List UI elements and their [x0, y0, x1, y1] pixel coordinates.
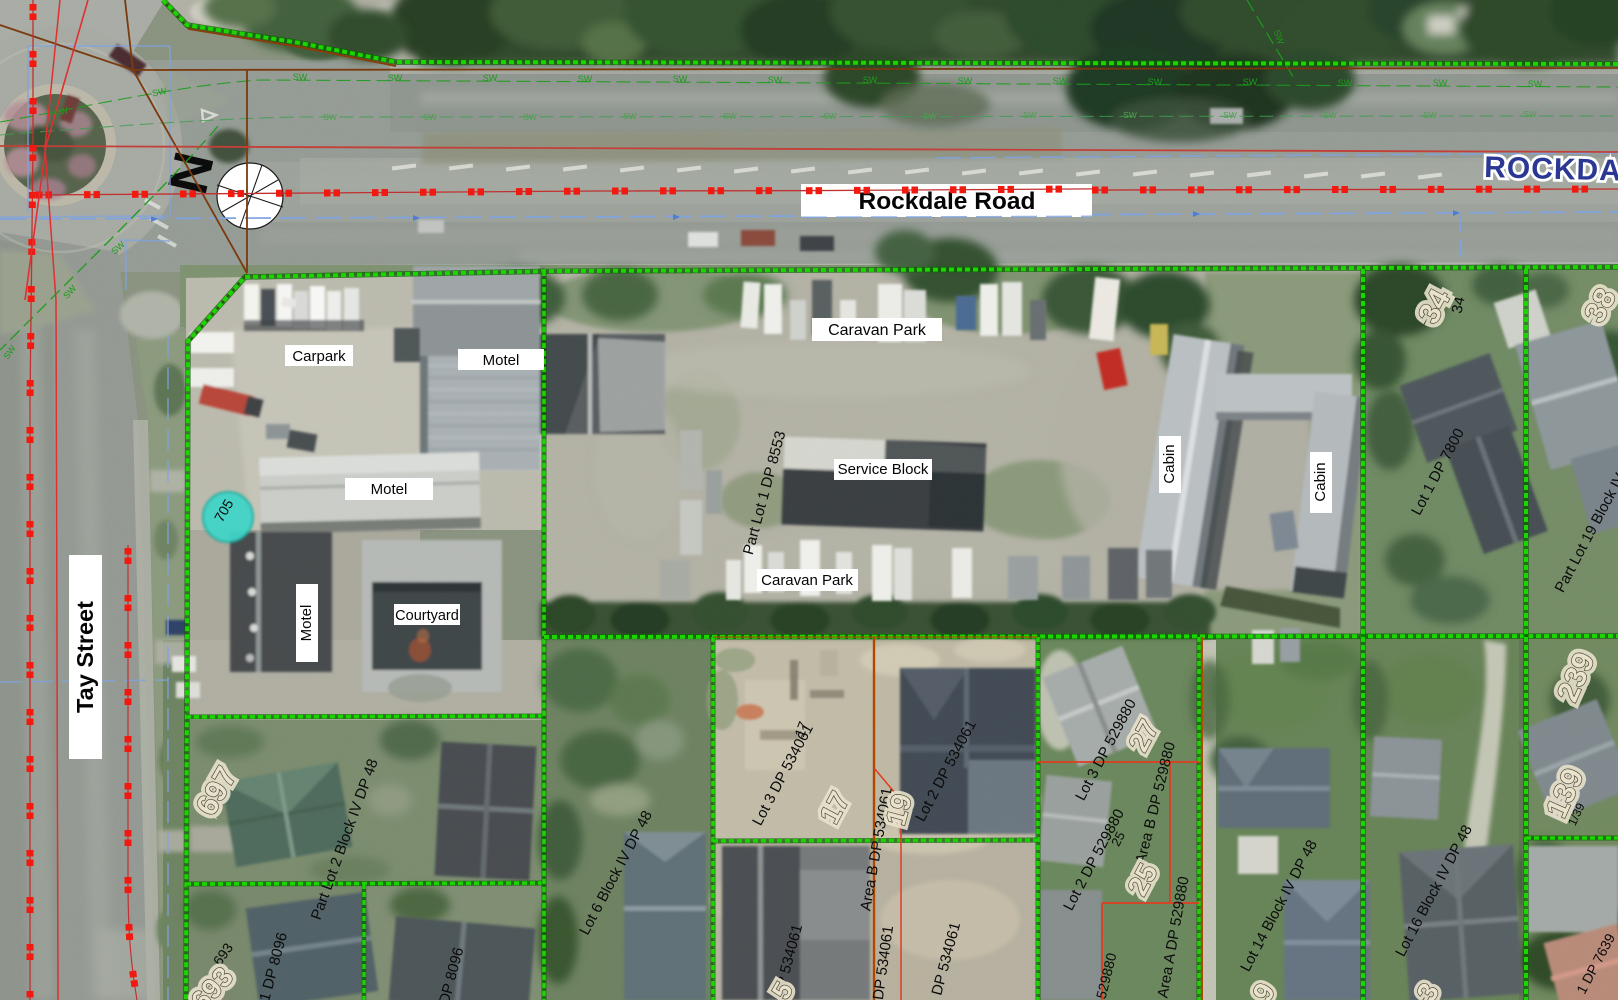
svg-text:Courtyard: Courtyard	[395, 608, 459, 624]
svg-text:SW: SW	[768, 75, 783, 85]
svg-text:SW: SW	[523, 112, 537, 122]
svg-text:SW: SW	[423, 112, 437, 122]
svg-text:SW: SW	[958, 76, 973, 86]
svg-text:Caravan Park: Caravan Park	[761, 572, 853, 589]
svg-text:SW: SW	[723, 111, 737, 121]
svg-text:SW: SW	[1053, 76, 1068, 86]
svg-text:SW: SW	[1243, 77, 1258, 87]
svg-text:SW: SW	[1148, 77, 1163, 87]
svg-text:Tay Street: Tay Street	[72, 601, 98, 713]
svg-text:Cabin: Cabin	[1312, 462, 1329, 501]
svg-text:SW: SW	[388, 73, 403, 83]
svg-text:SW: SW	[1433, 78, 1448, 88]
svg-text:SW: SW	[578, 74, 593, 84]
svg-text:SW: SW	[1323, 110, 1337, 120]
svg-text:SW: SW	[483, 73, 498, 83]
svg-text:SW: SW	[1023, 110, 1037, 120]
svg-text:Cabin: Cabin	[1161, 444, 1178, 483]
svg-text:SW: SW	[923, 111, 937, 121]
svg-text:SW: SW	[323, 112, 337, 122]
svg-text:SW: SW	[1223, 110, 1237, 120]
svg-text:Motel: Motel	[483, 352, 520, 369]
svg-text:Motel: Motel	[298, 605, 315, 642]
svg-text:SW: SW	[673, 74, 688, 84]
svg-text:Carpark: Carpark	[292, 348, 346, 365]
svg-text:Motel: Motel	[371, 481, 408, 498]
svg-text:SW: SW	[623, 111, 637, 121]
svg-text:SW: SW	[293, 72, 308, 82]
svg-text:Service Block: Service Block	[838, 461, 929, 478]
svg-text:SW: SW	[1123, 110, 1137, 120]
svg-text:SW: SW	[1423, 110, 1437, 120]
svg-text:Caravan Park: Caravan Park	[828, 322, 927, 339]
svg-text:SW: SW	[863, 75, 878, 85]
svg-text:SW: SW	[1523, 109, 1537, 119]
svg-text:SW: SW	[1528, 79, 1543, 89]
svg-text:SW: SW	[823, 111, 837, 121]
svg-text:SW: SW	[1338, 78, 1353, 88]
